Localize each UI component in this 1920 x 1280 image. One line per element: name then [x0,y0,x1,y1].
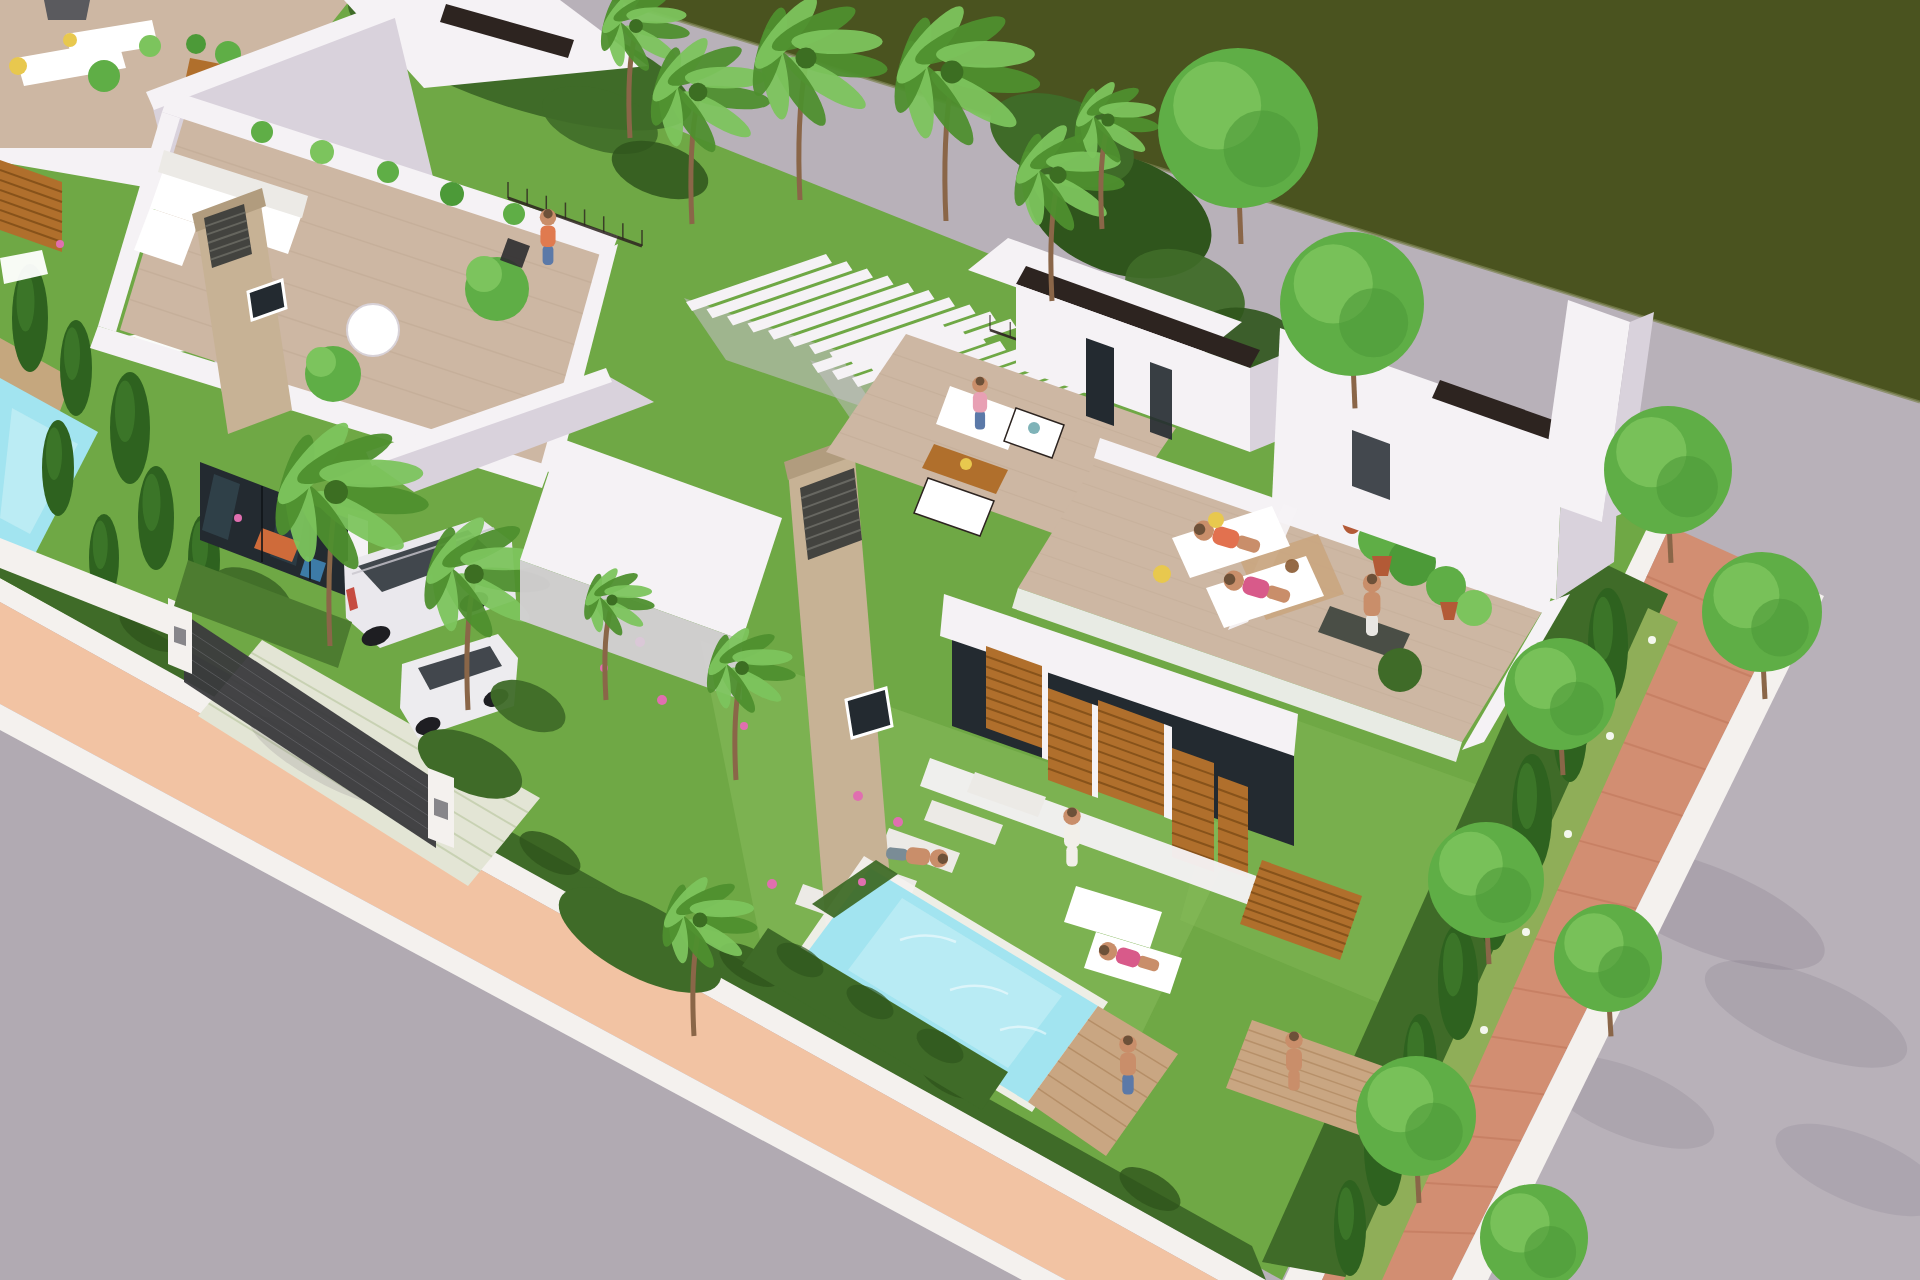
plant [251,121,273,143]
plant [310,140,334,164]
person-sitting-legs [1366,614,1378,636]
palm-tree [941,61,964,84]
flower [657,695,667,705]
palm-tree [606,594,617,605]
person-on-sofa-body [973,392,987,412]
person-on-deck-hair [1289,1031,1299,1041]
flower [234,514,242,522]
person-on-deck-body [1286,1049,1302,1072]
cushion [1028,422,1040,434]
column [1164,724,1172,820]
street-tree [1224,110,1301,187]
palm-tree [693,913,708,928]
door [1150,362,1172,440]
screenshot-root [0,0,1920,1280]
drinks-tray [1285,559,1299,573]
cypress [64,327,80,380]
person-sitting-body [1364,592,1381,616]
sun-hat [63,33,77,47]
cypress [115,380,135,442]
plant [139,35,161,57]
person-pool-edge-hair [1123,1035,1133,1045]
cypress [1593,597,1613,661]
person-on-sofa-hair [976,377,985,386]
street-tree [1476,867,1532,923]
street-tree [1656,456,1717,517]
person-diving-legs [886,847,909,861]
fan-plant [466,256,502,292]
flower-white [1480,1026,1488,1034]
person-balcony-body [540,225,555,247]
palm-tree [735,661,749,675]
street-tree [1550,682,1604,736]
sun-hat [1208,512,1224,528]
flower [893,817,903,827]
sun-hat [1153,565,1171,583]
person-child-body [1064,825,1080,848]
palm-tree [629,19,643,33]
person-pool-edge-body [1120,1053,1136,1076]
flower [740,722,748,730]
palm-tree [1049,166,1066,183]
person-child-legs [1066,846,1077,867]
flower-vase [960,458,972,470]
flower [853,791,863,801]
person-balcony-legs [543,245,554,265]
street-tree [1405,1103,1463,1161]
fan-plant [306,347,336,377]
cypress [1443,933,1463,997]
palm-tree [795,47,816,68]
cypress [143,474,161,531]
person-child-hair [1067,807,1077,817]
door [1086,338,1114,426]
flower-white [1522,928,1530,936]
person-sitting-hair [1367,574,1377,584]
sun-hat [9,57,27,75]
palm-tree [1101,113,1114,126]
person-on-sofa-legs [975,411,985,430]
cypress [93,521,108,569]
bbq-grill [44,0,90,20]
cypress [17,272,35,331]
potted-plant [1456,590,1492,626]
column [1042,666,1048,760]
plant [88,60,120,92]
flower [56,240,64,248]
flower-white [1606,732,1614,740]
plant [440,182,464,206]
scene-render [0,0,1920,1280]
street-tree [1339,288,1408,357]
street-tree [1751,599,1809,657]
palm-tree [464,564,484,584]
cypress [1517,763,1537,829]
round-table [347,304,399,356]
flower-white [1564,830,1572,838]
palm-tree [689,83,708,102]
plant [503,203,525,225]
cypress [1338,1187,1354,1240]
person-pool-edge-legs [1122,1074,1133,1095]
person-on-deck-legs [1288,1070,1299,1091]
plant [377,161,399,183]
flower [858,878,866,886]
street-tree [1598,946,1650,998]
palm-tree [324,480,348,504]
column [1092,704,1098,798]
plant [1378,648,1422,692]
person-diving-body [905,847,931,866]
flower [767,879,777,889]
flower-white [1648,636,1656,644]
plant [186,34,206,54]
person-balcony-hair [543,209,552,218]
street-tree [1524,1226,1576,1278]
cypress [46,427,62,480]
